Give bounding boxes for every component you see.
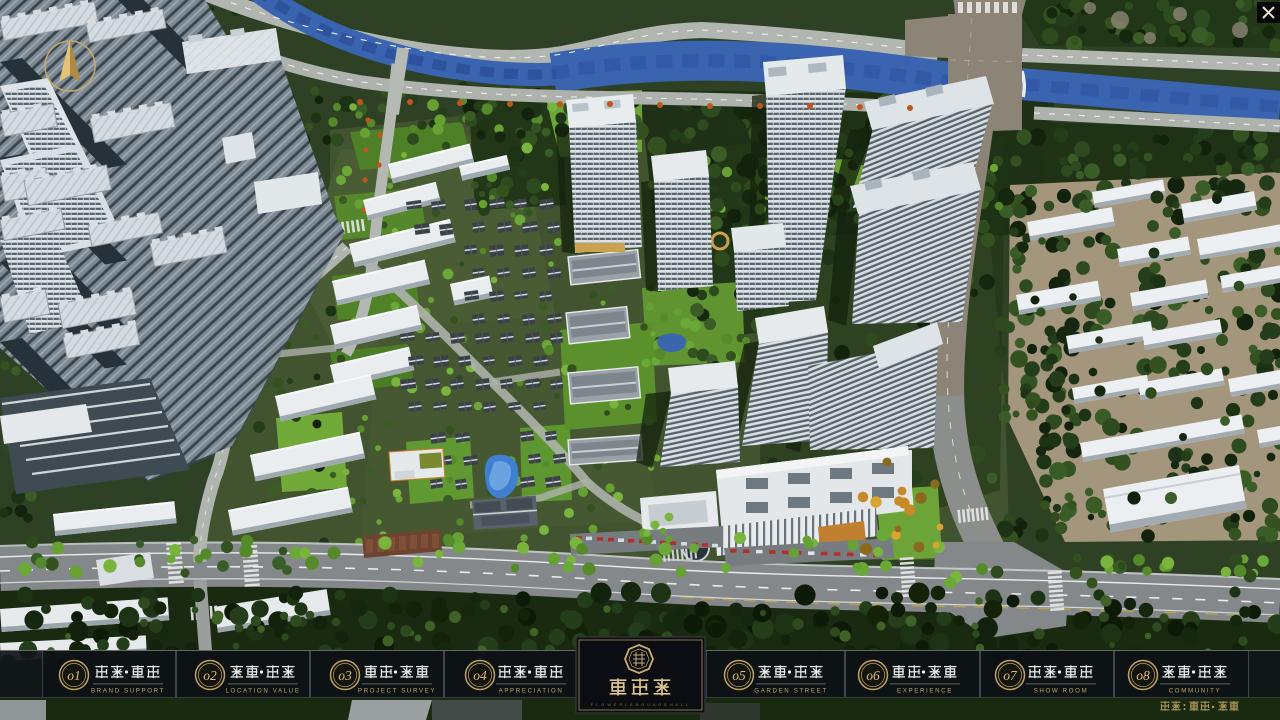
svg-text:o3: o3	[338, 668, 352, 683]
svg-text:EXPERIENCE: EXPERIENCE	[897, 688, 953, 695]
svg-text:o1: o1	[67, 668, 81, 683]
svg-text:o2: o2	[203, 668, 217, 683]
svg-text:APPRECIATION: APPRECIATION	[499, 688, 564, 695]
svg-text:GARDEN STREET: GARDEN STREET	[754, 688, 827, 695]
svg-text:o7: o7	[1003, 668, 1018, 683]
svg-text:o6: o6	[866, 668, 880, 683]
svg-text:o4: o4	[473, 668, 487, 683]
svg-text:BRAND SUPPORT: BRAND SUPPORT	[91, 688, 165, 695]
svg-text:F L O W E R L A N G U A G E: F L O W E R L A N G U A G E H A L L	[591, 703, 689, 707]
svg-text:o8: o8	[1136, 668, 1150, 683]
svg-text:LOCATION VALUE: LOCATION VALUE	[225, 688, 300, 695]
svg-text:SHOW ROOM: SHOW ROOM	[1034, 688, 1089, 695]
svg-text:PROJECT SURVEY: PROJECT SURVEY	[358, 688, 436, 695]
svg-text:COMMUNITY: COMMUNITY	[1169, 688, 1222, 695]
svg-text:o5: o5	[732, 668, 746, 683]
